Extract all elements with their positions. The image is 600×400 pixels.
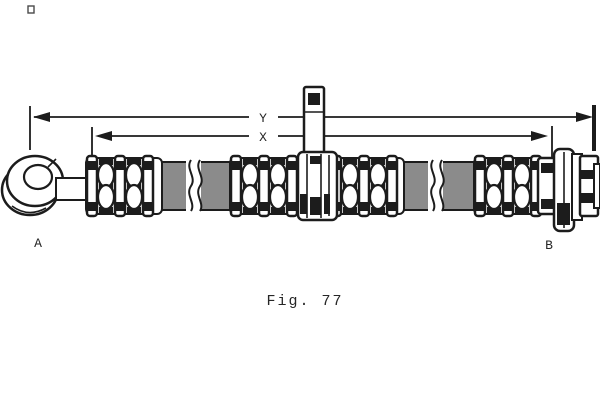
hose-break-right — [428, 156, 444, 216]
brake-hose-diagram: Y X A B Fig. 77 — [0, 0, 600, 400]
spring-guard-3 — [330, 156, 404, 216]
hose-break-left — [186, 156, 202, 216]
dimension-label-x: X — [259, 130, 267, 145]
figure-caption: Fig. 77 — [266, 293, 343, 310]
end-label-b: B — [545, 238, 553, 253]
mounting-bracket — [298, 87, 337, 220]
spring-guard-2 — [230, 156, 304, 216]
scan-artifact-mark — [28, 6, 34, 13]
dimension-label-y: Y — [259, 111, 267, 126]
end-label-a: A — [34, 236, 42, 251]
spring-guard-1 — [86, 156, 162, 216]
figure-canvas: Y X A B Fig. 77 — [0, 0, 600, 400]
banjo-fitting-a — [2, 156, 63, 215]
bracket-plate-b — [554, 149, 582, 231]
male-fitting-b — [580, 156, 600, 216]
